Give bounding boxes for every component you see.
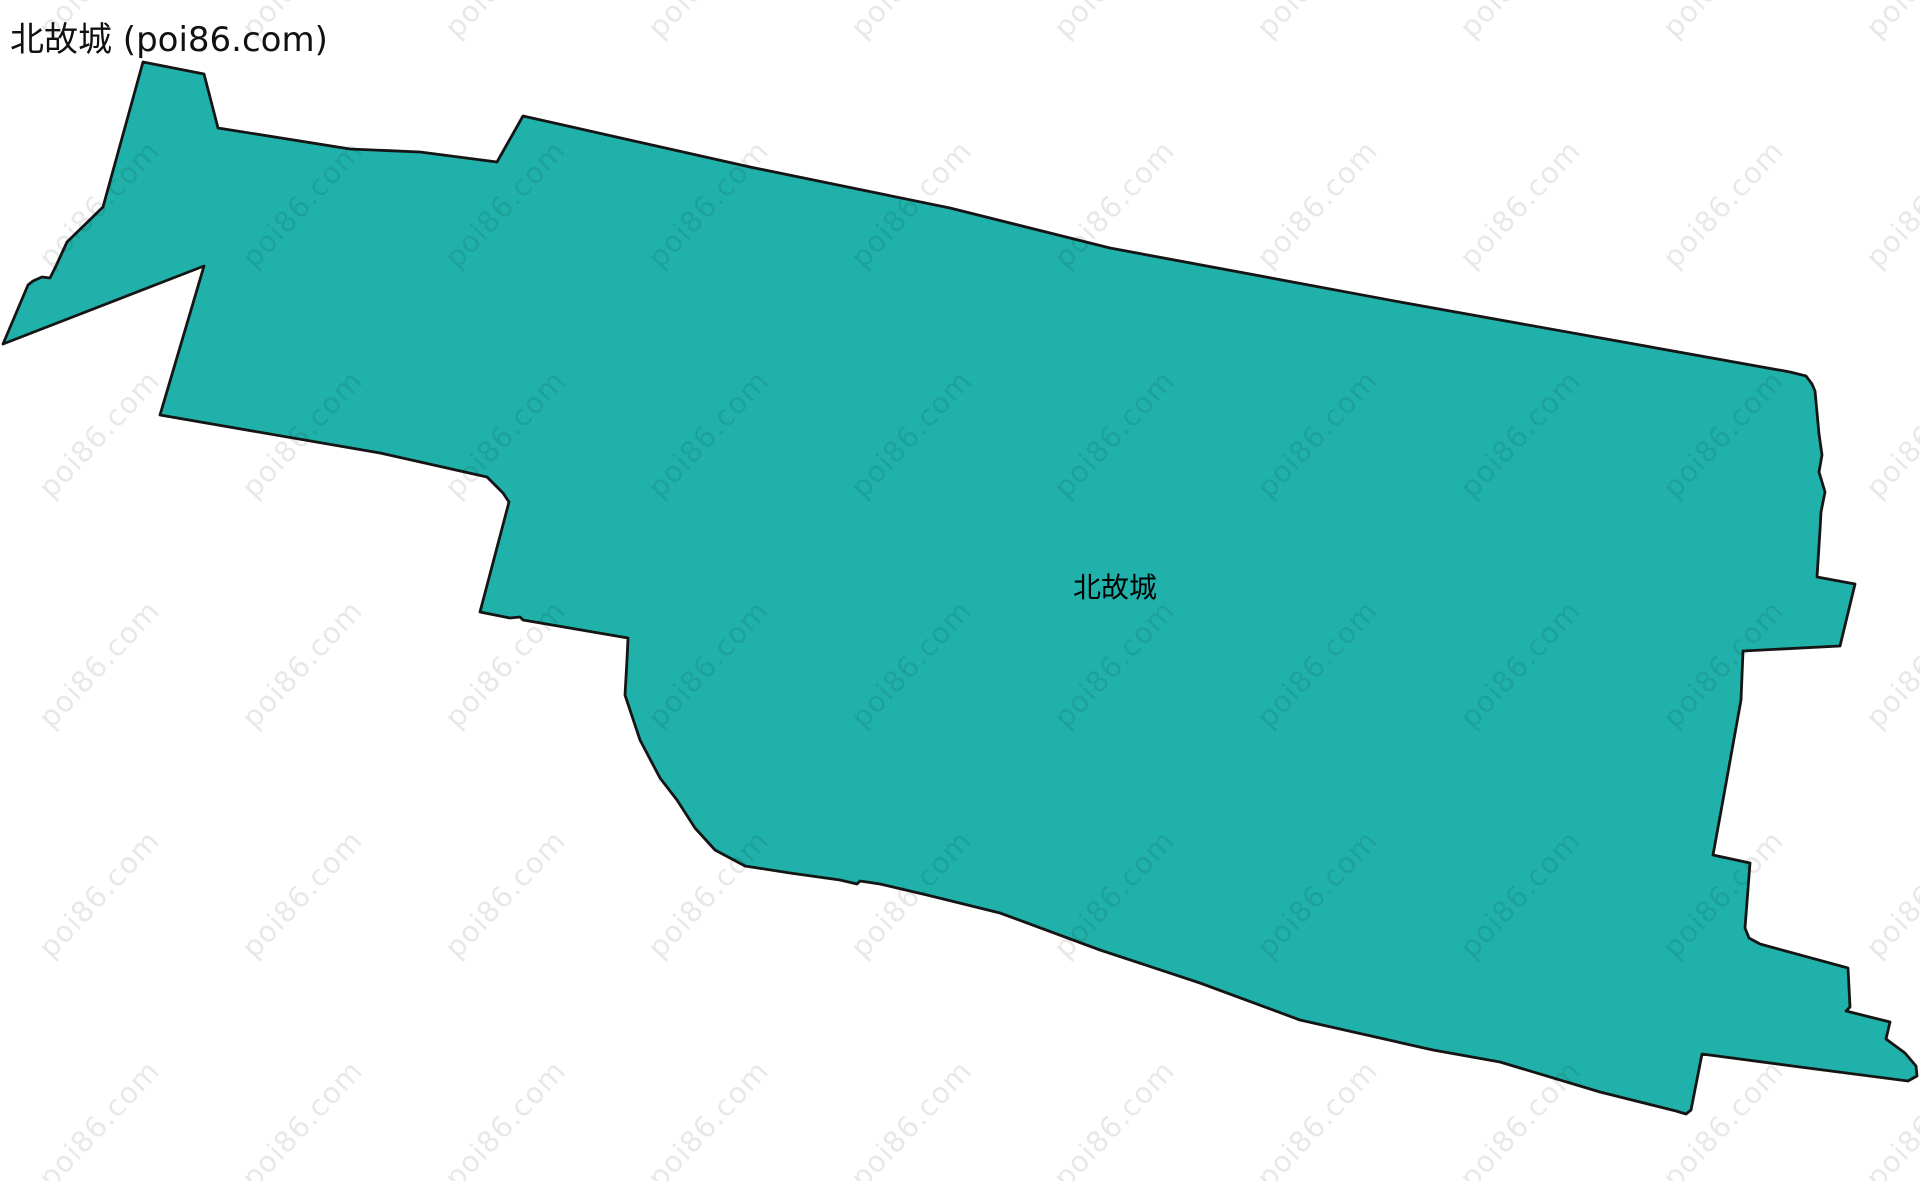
region-label: 北故城 — [1073, 566, 1157, 606]
region-boundary-svg — [0, 0, 1920, 1181]
map-canvas: poi86.compoi86.compoi86.compoi86.compoi8… — [0, 0, 1920, 1181]
region-boundary-polygon — [3, 62, 1917, 1114]
page-title: 北故城 (poi86.com) — [10, 12, 328, 61]
